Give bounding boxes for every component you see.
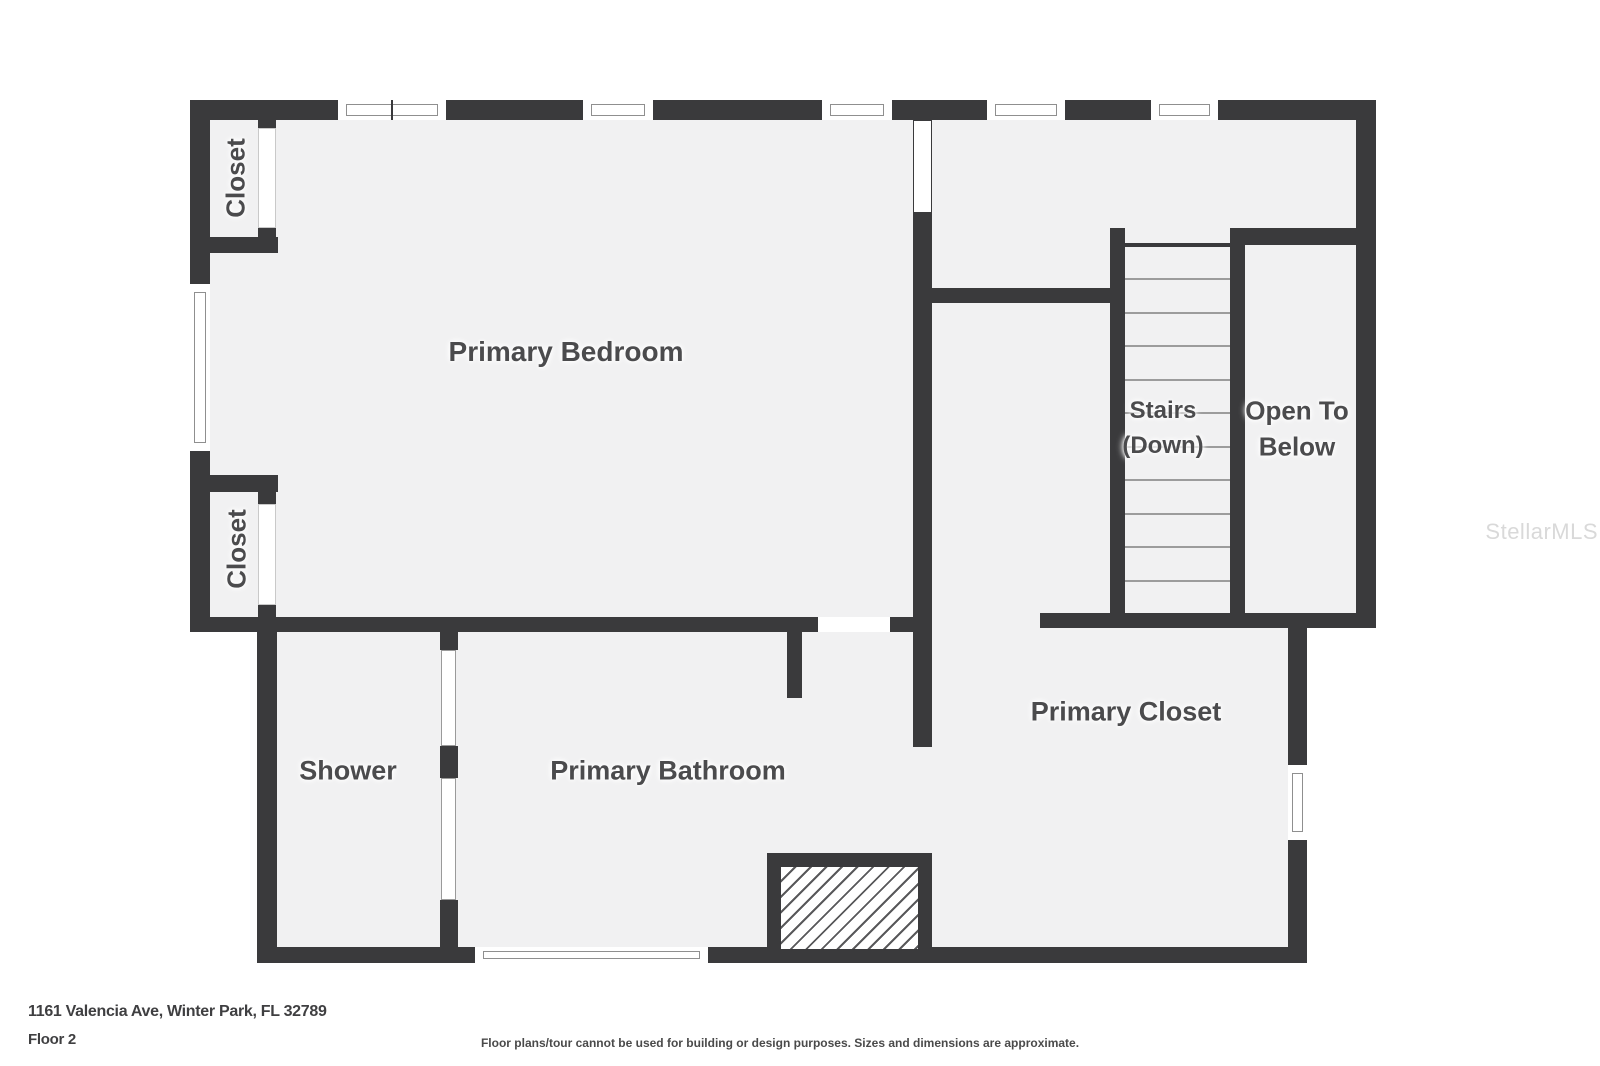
floor-number-label: Floor 2 bbox=[28, 1031, 76, 1048]
wall-closet1-jamb-top bbox=[258, 120, 276, 128]
window-left-bedroom bbox=[190, 282, 210, 453]
stair-tread bbox=[1125, 513, 1230, 515]
stellar-mls-watermark: StellarMLS bbox=[1485, 519, 1598, 545]
door-center-wall bbox=[914, 121, 931, 212]
wall-shower-partition-top bbox=[440, 632, 458, 650]
stair-tread bbox=[1125, 479, 1230, 481]
window-primary-closet-right-pane bbox=[1292, 773, 1303, 832]
room-label-closet-top-left: Closet bbox=[221, 138, 252, 217]
room-label-shower: Shower bbox=[299, 756, 397, 787]
window-top-3-pane bbox=[830, 104, 884, 116]
room-label-stairs-line2: (Down) bbox=[1122, 432, 1203, 460]
wall-upper-south bbox=[1040, 613, 1376, 628]
stair-tread bbox=[1125, 312, 1230, 314]
stair-tread bbox=[1125, 580, 1230, 582]
window-top-4 bbox=[985, 100, 1067, 120]
disclaimer-text: Floor plans/tour cannot be used for buil… bbox=[481, 1036, 1079, 1050]
room-label-primary-closet: Primary Closet bbox=[1031, 697, 1222, 728]
wall-bathroom-entry-stub bbox=[787, 632, 802, 698]
wall-shower-partition-mid bbox=[440, 746, 458, 778]
window-top-5-pane bbox=[1159, 104, 1210, 116]
window-left-bedroom-pane bbox=[194, 292, 206, 443]
room-label-primary-bedroom: Primary Bedroom bbox=[449, 336, 684, 368]
hatched-chase bbox=[767, 853, 932, 963]
window-top-5 bbox=[1149, 100, 1220, 120]
wall-bedroom-south-left bbox=[190, 617, 818, 632]
property-address: 1161 Valencia Ave, Winter Park, FL 32789 bbox=[28, 1003, 327, 1021]
wall-hall-south bbox=[932, 288, 1125, 303]
room-label-open-to-below-line1: Open To bbox=[1245, 396, 1349, 427]
window-top-4-pane bbox=[995, 104, 1057, 116]
stair-tread bbox=[1125, 345, 1230, 347]
window-top-1-mullion bbox=[391, 100, 393, 120]
wall-closet2-jamb-bottom bbox=[258, 605, 276, 617]
wall-shower-partition-bottom bbox=[440, 900, 458, 947]
room-label-closet-bottom-left: Closet bbox=[222, 509, 253, 588]
window-top-3 bbox=[820, 100, 894, 120]
wall-closet1-bottom bbox=[190, 237, 278, 253]
door-closet-top-left bbox=[258, 128, 276, 228]
floor-plan-page: { "watermark": "StellarMLS", "footer": {… bbox=[0, 0, 1600, 1066]
door-closet-bottom-left bbox=[258, 504, 276, 605]
stair-tread bbox=[1125, 379, 1230, 381]
hatch-pattern bbox=[781, 867, 918, 949]
floor-plan-canvas: Primary Bedroom Shower Primary Bathroom … bbox=[0, 0, 1600, 1066]
window-bathroom-south-pane bbox=[483, 951, 700, 959]
wall-center-vertical bbox=[913, 120, 932, 747]
window-primary-closet-right bbox=[1288, 763, 1307, 842]
wall-lower-left bbox=[257, 632, 277, 963]
window-top-2 bbox=[581, 100, 655, 120]
room-label-open-to-below-line2: Below bbox=[1259, 432, 1336, 463]
floor-upper-section bbox=[190, 100, 1376, 628]
door-bedroom-south bbox=[818, 617, 890, 632]
window-top-1 bbox=[336, 100, 448, 120]
stair-tread bbox=[1125, 546, 1230, 548]
wall-right-outer-upper bbox=[1356, 100, 1376, 628]
room-label-primary-bathroom: Primary Bathroom bbox=[550, 756, 786, 787]
wall-closet2-jamb-top bbox=[258, 492, 276, 504]
stair-tread bbox=[1125, 278, 1230, 280]
window-top-2-pane bbox=[591, 104, 645, 116]
shower-glass-lower bbox=[441, 778, 456, 900]
window-bathroom-south bbox=[473, 947, 710, 963]
wall-closet1-jamb-bottom bbox=[258, 228, 276, 237]
wall-closet2-top bbox=[190, 475, 278, 492]
room-label-stairs-line1: Stairs bbox=[1130, 397, 1197, 425]
shower-glass-upper bbox=[441, 650, 456, 746]
wall-open-below-top bbox=[1245, 228, 1356, 245]
wall-open-below-left bbox=[1230, 228, 1245, 628]
wall-stairwell-left bbox=[1110, 228, 1125, 628]
wall-stairs-top-edge bbox=[1125, 243, 1230, 247]
